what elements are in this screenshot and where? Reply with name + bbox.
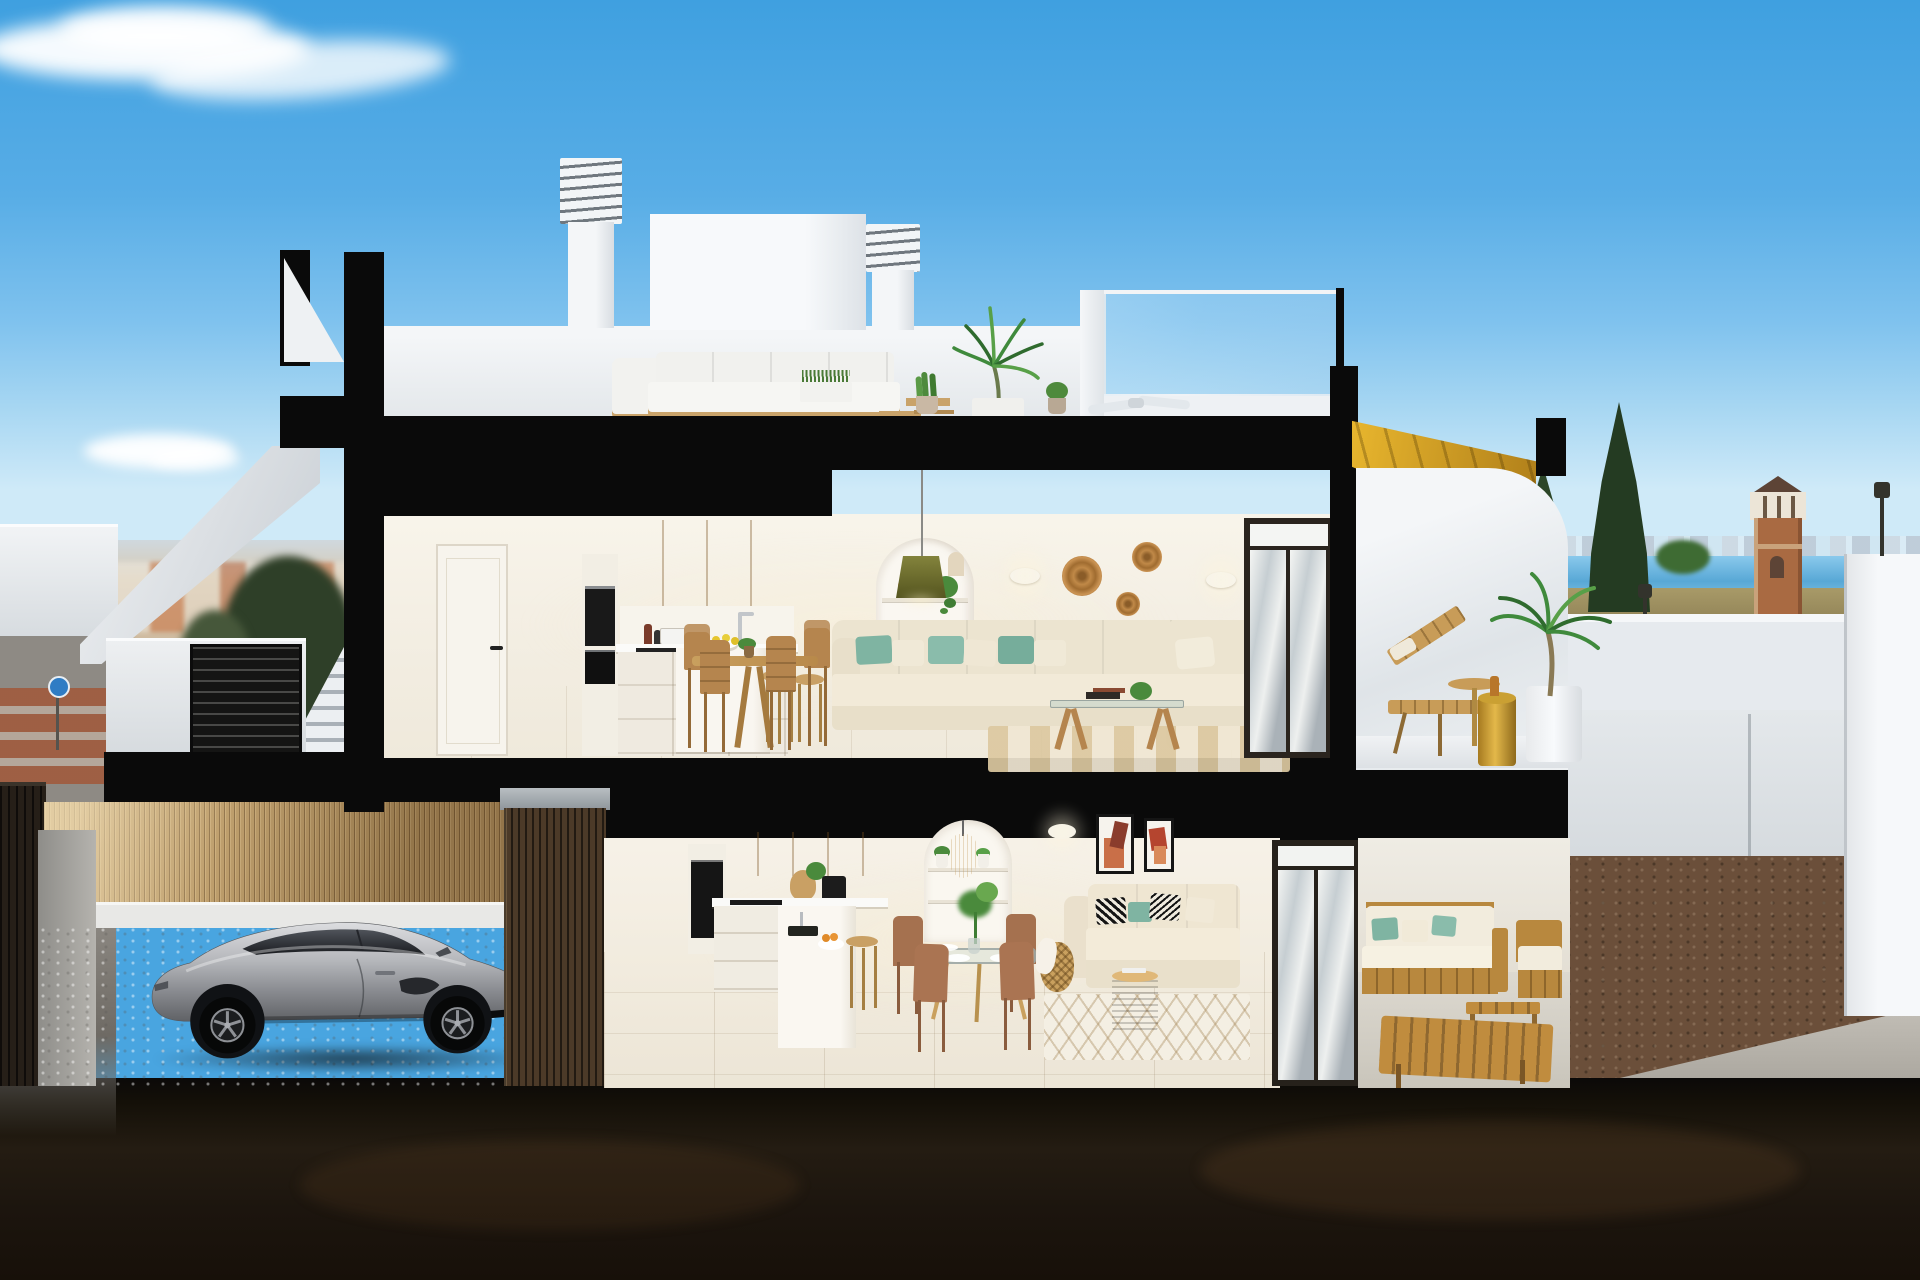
lower-stool-legs (850, 946, 853, 1008)
left-cut-step (280, 396, 384, 448)
lower-glass-door-panel-1 (1278, 870, 1314, 1080)
centerpiece-leaves-lower-2 (976, 882, 998, 902)
lower-base-cabinets (714, 906, 784, 992)
sports-car (142, 882, 554, 1066)
upper-glass-door-panel-1 (1250, 550, 1286, 752)
cloud-small-tail (150, 448, 240, 470)
coffee-table-books (1086, 692, 1120, 699)
lower-niche-pot-1 (936, 854, 948, 868)
upper-door-handle (490, 646, 503, 650)
upper-wall-oven (585, 586, 615, 646)
roof-planter-box (800, 382, 852, 402)
garden-wall-corner-shadow (1748, 714, 1751, 862)
dining-centerpiece-vase (744, 646, 754, 658)
cream-pillow-3 (1034, 640, 1066, 666)
ground-patch-2 (1200, 1120, 1800, 1220)
dining-chair-front-right (766, 636, 796, 692)
terrace-palm-graphic (1488, 546, 1618, 702)
street-lamp-3-post (1880, 496, 1884, 556)
ground-patch-1 (300, 1140, 800, 1230)
lower-sofa-seat (1086, 928, 1240, 964)
wood-armchair-cushion (1518, 946, 1562, 972)
stair-bulkhead (650, 214, 866, 330)
rattan-table-magazine (1122, 968, 1146, 973)
wood-sofa-cream-pillow (1402, 920, 1428, 942)
lower-sink (788, 926, 818, 936)
watchtower-band (1754, 544, 1802, 549)
pendant-cord (921, 468, 923, 560)
lower-niche-pot-2 (978, 854, 989, 868)
render-canvas (0, 0, 1920, 1280)
tray-table-stem (1472, 688, 1477, 746)
niche-arch-ornament (948, 552, 964, 576)
woven-basket-medium (1132, 542, 1162, 572)
roof-slab-cut (344, 416, 1334, 470)
traffic-sign (48, 676, 70, 698)
roof-sofa-seat (648, 382, 900, 412)
oranges (822, 934, 830, 942)
oil-bottle-1 (644, 624, 652, 644)
bar-stool-2-legs (798, 684, 801, 742)
left-cut-column (344, 252, 384, 812)
woven-basket-large (1062, 556, 1102, 596)
lower-chair-back-left-legs (897, 962, 900, 1014)
roof-aloe-pot (916, 396, 938, 414)
terrace-palm (1488, 546, 1618, 702)
wood-armchair-base (1518, 970, 1562, 998)
pendant-glow (898, 592, 944, 608)
roof-small-pot (1048, 398, 1066, 414)
lower-hob (730, 900, 782, 905)
cream-pillow-2 (963, 639, 997, 667)
upper-oak-cabinets (620, 520, 794, 608)
roof-pillar-right (1080, 290, 1106, 420)
wood-lounger-legs (1396, 1064, 1401, 1088)
glass-balustrade (1104, 290, 1336, 396)
chaise-pillow (1175, 636, 1216, 670)
teal-pillow-3 (998, 636, 1034, 664)
rear-wheel (199, 997, 255, 1053)
terrace-cut-top-right (1536, 418, 1566, 476)
lower-chair-front-left (913, 943, 949, 1002)
bw-pillow-2 (1149, 893, 1181, 922)
coffee-table-plant (1130, 682, 1152, 700)
sign-pole (56, 692, 59, 750)
timber-slat-pillar (504, 808, 606, 1086)
chimney-short-stem (872, 270, 914, 330)
upper-hall-door-panel (446, 558, 500, 744)
dining-chair-back-right-legs (808, 666, 811, 746)
watchtower-window (1770, 556, 1784, 578)
dining-chair-front-right-legs (770, 690, 773, 750)
ceiling-fan-hub (1128, 398, 1144, 408)
timber-pillar-cap (500, 788, 610, 810)
dining-chair-back-left-legs (688, 668, 691, 748)
wood-sofa-teal-pillow-1 (1371, 917, 1398, 941)
teal-pillow-lower (1128, 902, 1152, 922)
rattan-pendant (948, 834, 978, 878)
upper-wall-oven-2 (585, 650, 615, 684)
front-wheel (430, 996, 484, 1050)
centerpiece-vase-lower (968, 938, 980, 954)
dining-chair-front-left (700, 640, 730, 694)
lower-glass-door-panel-2 (1318, 870, 1354, 1080)
lower-glass-door-transom (1278, 846, 1354, 866)
wood-coffee-table (1466, 1002, 1540, 1014)
art-frame-2-shape-b (1154, 846, 1166, 864)
dining-chair-front-left-legs (704, 692, 707, 752)
sports-car-graphic (142, 882, 554, 1066)
lower-chair-front-right-legs (1004, 998, 1007, 1050)
roof-sofa-back (656, 352, 894, 386)
sun-lounger-leg-2 (1438, 714, 1442, 756)
lower-faucet (800, 912, 803, 926)
chimney-tall-stem (568, 222, 614, 328)
roof-slab-cut-step (344, 468, 832, 516)
bw-pillow-1 (1095, 897, 1127, 925)
chimney-tall-cap (560, 158, 622, 224)
tall-white-wall-far-right (1844, 554, 1920, 1016)
wood-lounger (1379, 1016, 1554, 1083)
gold-drum-table (1478, 696, 1516, 766)
wood-sofa-frame (1362, 968, 1498, 994)
sconce-glow-2 (1192, 546, 1250, 614)
wood-sofa-seat-cushion (1362, 946, 1498, 970)
chimney-short-cap (866, 224, 920, 272)
upper-faucet-spout (738, 612, 754, 616)
louvered-gate (190, 644, 302, 756)
upper-sofa-seat (832, 674, 1256, 710)
cloud-large-top (60, 6, 270, 52)
woven-basket-small (1116, 592, 1140, 616)
place-setting-3 (946, 954, 970, 962)
cream-pillow-1 (892, 640, 924, 666)
watchtower-loggia-pillars (1753, 496, 1803, 518)
lower-sconce-glow (1036, 806, 1088, 858)
wood-sofa-teal-pillow-2 (1431, 915, 1457, 937)
sconce-glow-1 (996, 542, 1054, 610)
upper-glass-door-panel-2 (1290, 550, 1326, 752)
rattan-coffee-table (1112, 974, 1158, 1034)
cream-pillow-lower (1185, 897, 1215, 924)
teal-pillow-1 (855, 635, 892, 665)
lower-chair-front-left-legs (918, 1000, 921, 1052)
lower-sofa-front (1086, 960, 1240, 988)
shrub-right (1656, 540, 1710, 574)
upper-glass-door-transom (1250, 524, 1328, 546)
coffee-table-glass-top (1050, 700, 1184, 708)
lower-chair-front-right (999, 941, 1035, 1000)
wood-sofa-arm (1492, 928, 1508, 992)
teal-pillow-2 (928, 636, 964, 664)
lower-oak-cabinets (724, 832, 864, 876)
